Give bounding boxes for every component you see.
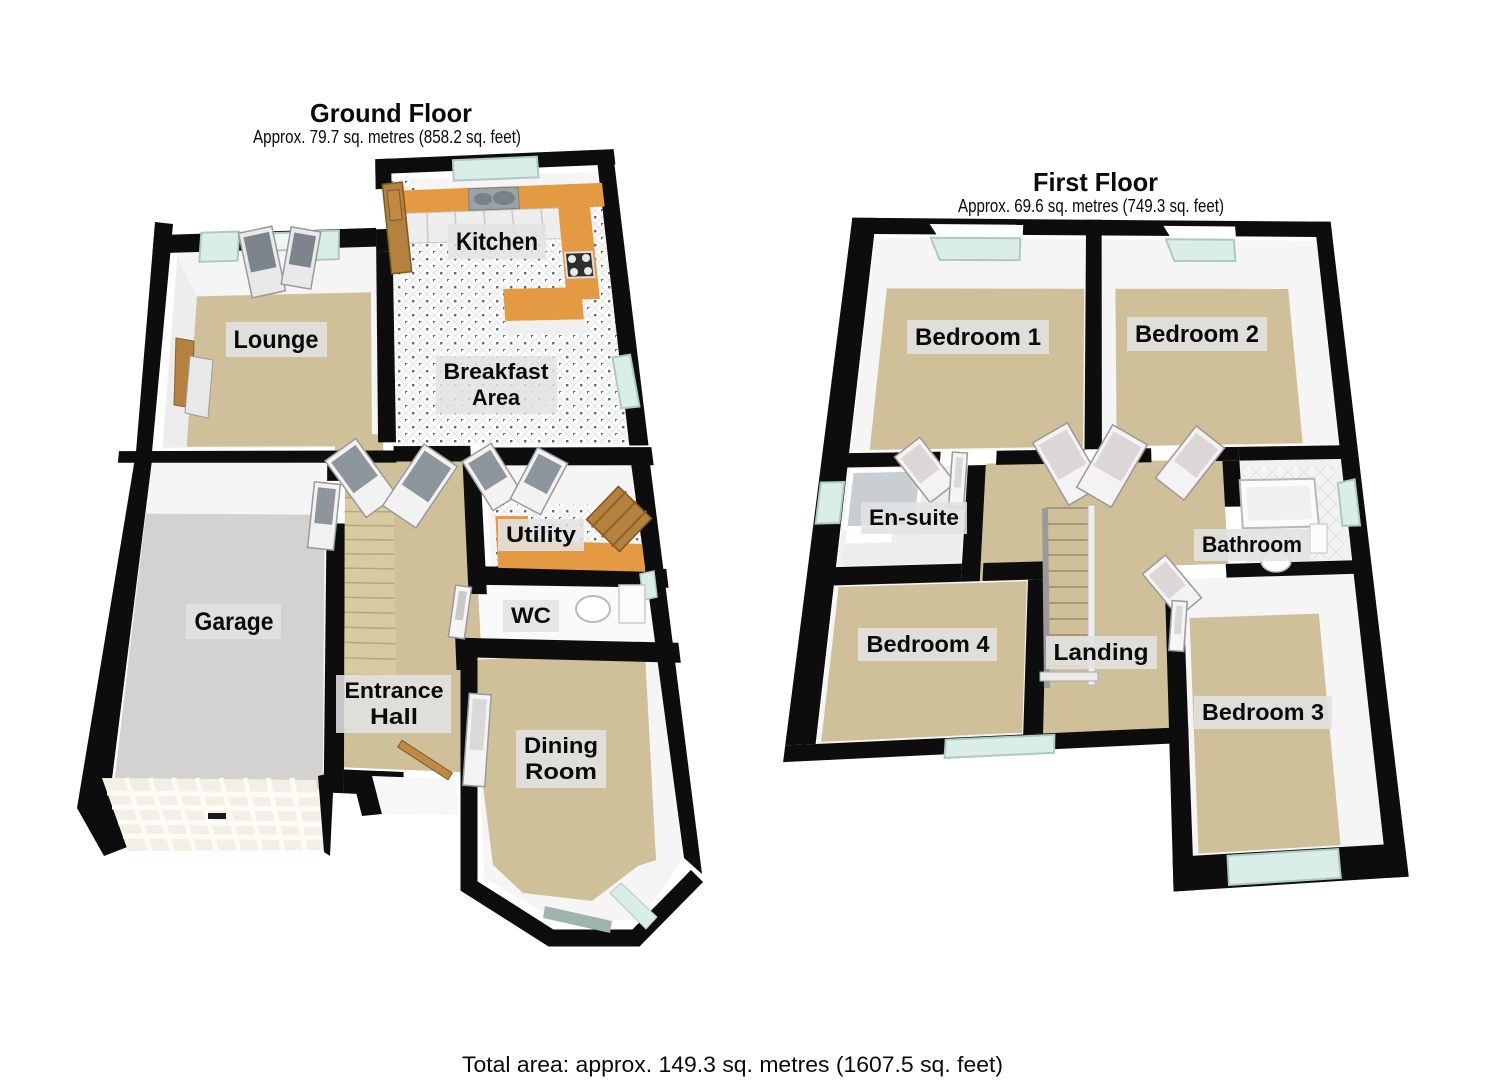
svg-text:First Floor: First Floor	[1033, 167, 1158, 197]
svg-text:En-suite: En-suite	[869, 505, 959, 530]
svg-text:Landing: Landing	[1054, 639, 1149, 665]
svg-text:Lounge: Lounge	[234, 326, 319, 354]
svg-text:Area: Area	[472, 385, 521, 410]
svg-text:Kitchen: Kitchen	[456, 228, 538, 256]
svg-text:Bedroom 2: Bedroom 2	[1135, 321, 1259, 348]
svg-text:Room: Room	[525, 759, 597, 784]
svg-text:Bedroom 3: Bedroom 3	[1202, 699, 1324, 725]
svg-text:Entrance: Entrance	[345, 678, 444, 703]
svg-text:Hall: Hall	[370, 704, 418, 729]
svg-text:Utility: Utility	[506, 522, 577, 547]
svg-text:Approx. 79.7 sq. metres (858.2: Approx. 79.7 sq. metres (858.2 sq. feet)	[253, 127, 521, 147]
svg-text:Ground Floor: Ground Floor	[310, 98, 472, 128]
svg-text:WC: WC	[511, 603, 551, 628]
svg-text:Approx. 69.6 sq. metres (749.3: Approx. 69.6 sq. metres (749.3 sq. feet)	[958, 196, 1224, 216]
svg-text:Bathroom: Bathroom	[1202, 532, 1302, 557]
svg-text:Garage: Garage	[195, 608, 274, 636]
svg-text:Total area: approx. 149.3 sq.: Total area: approx. 149.3 sq. metres (16…	[462, 1052, 1003, 1077]
svg-text:Bedroom 1: Bedroom 1	[915, 324, 1041, 351]
svg-text:Breakfast: Breakfast	[444, 359, 550, 384]
svg-text:Bedroom 4: Bedroom 4	[867, 631, 990, 657]
svg-text:Dining: Dining	[524, 733, 598, 758]
